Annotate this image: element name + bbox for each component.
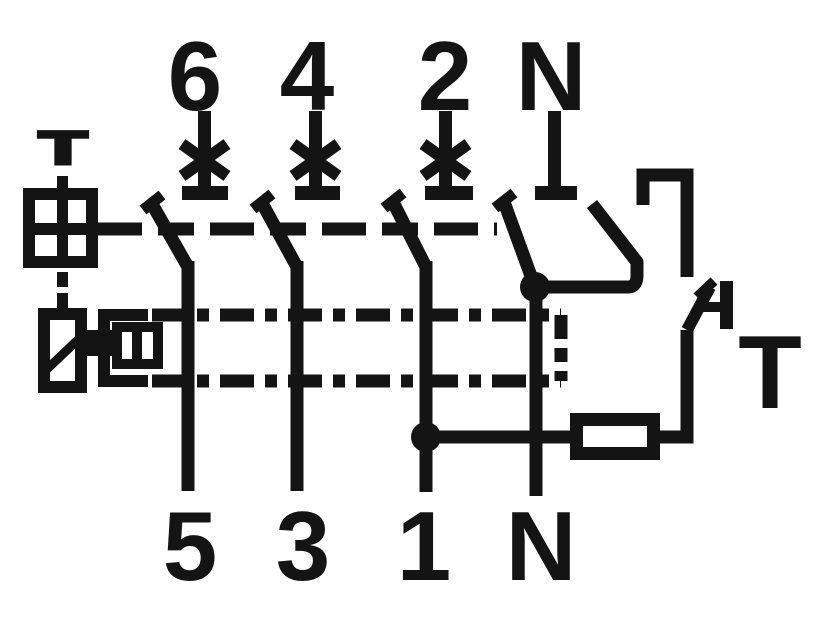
left-test-marker-label: T [39,122,87,174]
fixed-contact-bar [425,186,473,200]
terminal-label-top: 4 [280,21,335,131]
fixed-contact-bar [295,186,340,200]
terminal-lead [548,111,561,186]
dashed-link-segment [57,293,68,309]
fixed-contact-bar [535,186,577,200]
aux-switch-blade [535,204,637,287]
coupling-lines [98,229,561,381]
terminal-label-bottom: 3 [276,491,331,601]
pole-l1: 2 1 [384,21,473,601]
left-release-assembly: T [23,122,158,387]
test-resistor-icon [577,420,654,454]
button-actuator-face [720,281,733,329]
terminal-label-bottom: 5 [163,491,218,601]
test-circuit: T [426,281,802,454]
test-wire-right [660,330,687,437]
rcbo-wiring-diagram: T 6 5 4 3 2 [0,0,833,618]
terminal-label-top: 6 [168,21,223,131]
dashed-link-segment [57,272,68,287]
terminal-label-bottom: N [506,491,577,601]
dashed-link-segment [57,176,68,188]
fixed-contact-bar [182,186,228,200]
terminal-label-bottom: 1 [397,491,452,601]
diagram-canvas: T 6 5 4 3 2 [0,0,833,618]
aux-contact-hook-wire [643,175,687,277]
test-button-label: T [738,315,802,431]
